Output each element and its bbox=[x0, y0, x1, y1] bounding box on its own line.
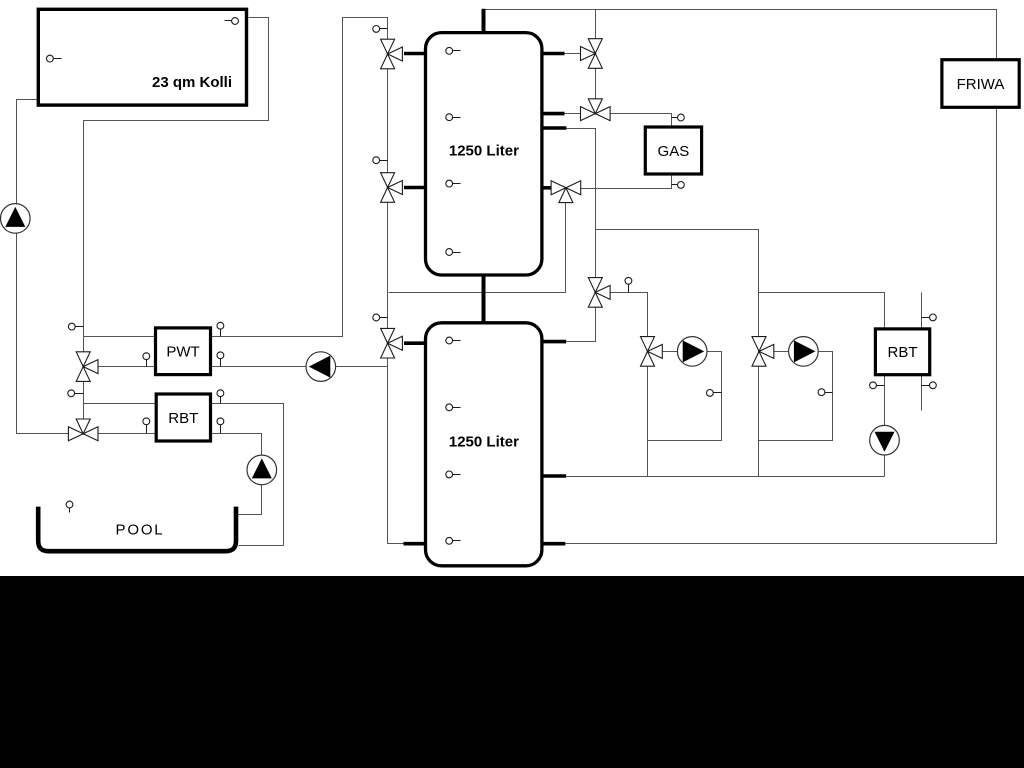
svg-text:RBT: RBT bbox=[888, 344, 918, 361]
svg-text:POOL: POOL bbox=[116, 522, 165, 539]
svg-text:RBT: RBT bbox=[168, 410, 198, 427]
svg-text:PWT: PWT bbox=[166, 344, 199, 361]
svg-text:23 qm Kolli: 23 qm Kolli bbox=[152, 74, 232, 91]
svg-text:GAS: GAS bbox=[658, 143, 690, 160]
svg-text:1250 Liter: 1250 Liter bbox=[449, 434, 519, 451]
svg-text:FRIWA: FRIWA bbox=[957, 76, 1005, 93]
svg-text:1250 Liter: 1250 Liter bbox=[449, 143, 519, 160]
